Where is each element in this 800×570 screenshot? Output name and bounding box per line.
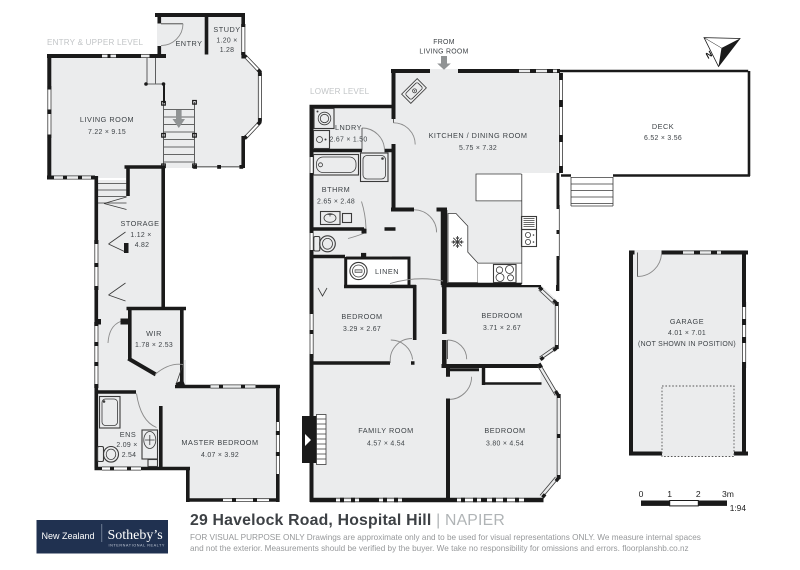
svg-text:KITCHEN / DINING ROOM: KITCHEN / DINING ROOM <box>429 131 528 140</box>
svg-text:DECK: DECK <box>652 122 674 131</box>
svg-text:STORAGE: STORAGE <box>120 219 159 228</box>
svg-text:BTHRM: BTHRM <box>322 185 350 194</box>
svg-text:BEDROOM: BEDROOM <box>481 311 522 320</box>
svg-text:LOWER LEVEL: LOWER LEVEL <box>310 87 370 96</box>
svg-text:7.22 × 9.15: 7.22 × 9.15 <box>88 129 126 136</box>
svg-text:New Zealand: New Zealand <box>42 531 95 541</box>
svg-text:1.20 ×: 1.20 × <box>216 38 237 45</box>
svg-text:1:94: 1:94 <box>730 503 747 513</box>
svg-text:ENTRY: ENTRY <box>175 39 202 48</box>
svg-text:1: 1 <box>667 489 672 499</box>
svg-text:2: 2 <box>696 489 701 499</box>
svg-text:3.80 × 4.54: 3.80 × 4.54 <box>486 441 524 448</box>
svg-text:3.29 × 2.67: 3.29 × 2.67 <box>343 326 381 333</box>
svg-text:4.07 × 3.92: 4.07 × 3.92 <box>201 452 239 459</box>
svg-text:ENTRY & UPPER LEVEL: ENTRY & UPPER LEVEL <box>47 38 143 47</box>
svg-text:1.78 × 2.53: 1.78 × 2.53 <box>135 342 173 349</box>
svg-text:FAMILY ROOM: FAMILY ROOM <box>358 426 414 435</box>
svg-text:STUDY: STUDY <box>213 25 240 34</box>
svg-text:2.09 ×: 2.09 × <box>116 442 137 449</box>
svg-text:2.65 × 2.48: 2.65 × 2.48 <box>317 199 355 206</box>
svg-text:BEDROOM: BEDROOM <box>484 426 525 435</box>
svg-text:WIR: WIR <box>146 329 162 338</box>
svg-text:29 Havelock Road, Hospital Hil: 29 Havelock Road, Hospital Hill | NAPIER <box>190 512 505 529</box>
svg-text:2.54: 2.54 <box>122 452 137 459</box>
svg-text:LIVING ROOM: LIVING ROOM <box>80 115 134 124</box>
svg-text:LINEN: LINEN <box>375 267 399 276</box>
svg-text:and not the exterior. Measurem: and not the exterior. Measurements shoul… <box>190 544 689 553</box>
svg-text:2.67 × 1.50: 2.67 × 1.50 <box>330 137 368 144</box>
svg-text:3m: 3m <box>722 489 734 499</box>
svg-text:BEDROOM: BEDROOM <box>341 312 382 321</box>
svg-text:4.01 × 7.01: 4.01 × 7.01 <box>668 330 706 337</box>
svg-text:FOR VISUAL PURPOSE ONLY Drawin: FOR VISUAL PURPOSE ONLY Drawings are app… <box>190 533 701 542</box>
svg-text:4.82: 4.82 <box>135 242 150 249</box>
svg-text:(NOT SHOWN IN POSITION): (NOT SHOWN IN POSITION) <box>638 341 736 348</box>
svg-text:4.57 × 4.54: 4.57 × 4.54 <box>367 441 405 448</box>
svg-text:FROM: FROM <box>433 39 455 46</box>
svg-text:6.52 × 3.56: 6.52 × 3.56 <box>644 135 682 142</box>
svg-text:0: 0 <box>639 489 644 499</box>
svg-text:MASTER BEDROOM: MASTER BEDROOM <box>181 438 258 447</box>
svg-text:INTERNATIONAL REALTY: INTERNATIONAL REALTY <box>109 544 166 548</box>
svg-text:GARAGE: GARAGE <box>670 317 704 326</box>
svg-text:5.75 × 7.32: 5.75 × 7.32 <box>459 145 497 152</box>
svg-text:1.12 ×: 1.12 × <box>130 232 151 239</box>
svg-text:ENS: ENS <box>120 430 137 439</box>
svg-text:3.71 × 2.67: 3.71 × 2.67 <box>483 325 521 332</box>
svg-text:1.28: 1.28 <box>220 47 235 54</box>
svg-text:LNDRY: LNDRY <box>335 123 362 132</box>
svg-text:Sotheby’s: Sotheby’s <box>108 528 163 543</box>
svg-text:LIVING ROOM: LIVING ROOM <box>419 49 468 56</box>
